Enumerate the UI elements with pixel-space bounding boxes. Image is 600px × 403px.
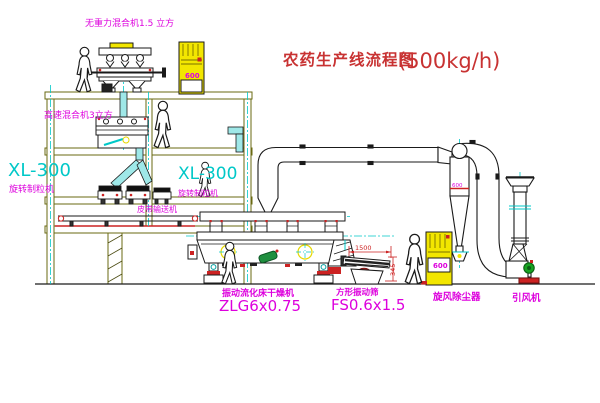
cyclone-cone: [450, 196, 469, 246]
sieve-base: [351, 269, 383, 284]
belt-conveyor: [58, 216, 198, 226]
cyclone-body: [450, 157, 469, 196]
cabinet-a-text: 600: [185, 72, 200, 80]
control-cabinet-a: 600: [179, 42, 204, 94]
cyclone-dim-text: 600: [452, 183, 463, 189]
vibrating-sieve: 1500 345: [328, 240, 397, 284]
exhaust-stack: [506, 177, 534, 261]
label-xl300-left-sub: 旋转制粒机: [9, 183, 54, 195]
label-xl300-mid-sub: 旋转制粒机: [178, 188, 218, 198]
person-figure: [76, 47, 92, 91]
label-belt-conveyor: 皮带输送机: [137, 204, 177, 214]
label-xl300-left: XL-300: [8, 160, 71, 181]
label-cyclone: 旋风除尘器: [432, 291, 481, 303]
dryer-lid: [197, 232, 343, 240]
page-title-capacity: (500kg/h): [398, 49, 500, 73]
label-xl300-mid: XL-300: [178, 164, 237, 184]
rain-cap: [506, 178, 534, 186]
person-figure: [405, 234, 422, 283]
mixer-vent: [110, 43, 133, 48]
label-floor2-mixer: 高速混合机3立方: [44, 109, 113, 121]
dim-1500-text: 1500: [355, 244, 372, 252]
exhaust-duct: [258, 145, 438, 219]
dryer-foot-left: [204, 263, 223, 283]
stack-pipe: [514, 192, 526, 244]
dim-345-text: 345: [389, 264, 397, 276]
zero-gravity-mixer: [85, 43, 166, 92]
cad-drawing: 600: [0, 0, 600, 403]
cabinet-b-text: 600: [433, 262, 448, 270]
vortex-finder: [452, 144, 467, 159]
person-figure: [154, 101, 170, 147]
exhaust-manifold: [200, 212, 345, 221]
right-l-duct-v: [236, 134, 243, 152]
support-pier: [108, 233, 122, 284]
process-flow-diagram: 600: [0, 0, 600, 403]
feed-chute: [120, 92, 127, 117]
label-dryer-model: ZLG6x0.75: [219, 297, 301, 315]
mixer-lid: [99, 48, 151, 55]
label-sieve-model: FS0.6x1.5: [331, 296, 405, 314]
page-title: 农药生产线流程图: [282, 50, 415, 69]
dim-1500: 1500: [349, 244, 391, 258]
feed-funnels: [106, 55, 144, 69]
right-l-duct-h: [228, 127, 243, 134]
fluid-bed-dryer: [188, 212, 352, 283]
label-fan: 引风机: [512, 292, 541, 304]
control-cabinet-b: 600: [421, 232, 452, 285]
label-top-mixer: 无重力混合机1.5 立方: [85, 17, 174, 29]
mixer-hopper: [98, 135, 146, 148]
mixer-motor: [102, 84, 112, 92]
induced-draft-fan: [506, 260, 539, 283]
fan-base: [519, 278, 539, 283]
